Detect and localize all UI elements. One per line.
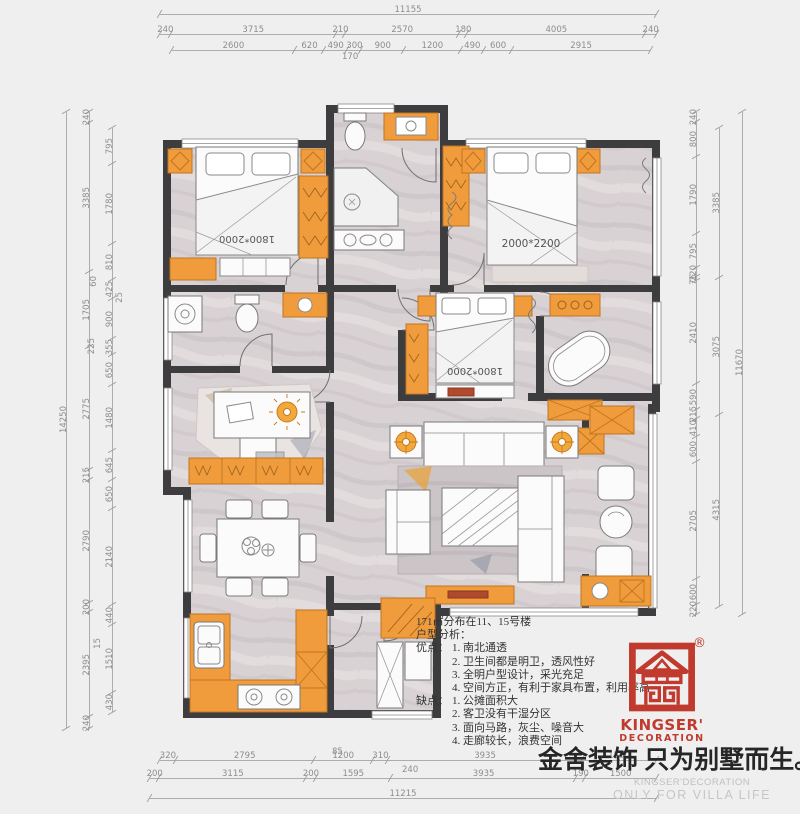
dining-chair [262, 500, 288, 518]
dim-segment: 2140 [102, 509, 116, 605]
dim-segment: 645 [102, 451, 116, 480]
dim-segment: 4005 [467, 24, 645, 38]
dim-segment: 620 [295, 40, 324, 54]
dim-segment: 2395 [79, 612, 93, 718]
bedroom-rug [492, 266, 588, 282]
armchair [386, 490, 430, 554]
dining-chair [300, 534, 316, 562]
dim-segment: 795 [102, 128, 116, 164]
dim-chain-right-mid: 338530754315 [709, 128, 723, 606]
dim-segment: 14250 [56, 112, 70, 728]
dim-segment: 2570 [345, 24, 459, 38]
dim-segment: 2795 [176, 750, 314, 764]
cabinet-x [590, 406, 634, 434]
dim-segment: 11215 [150, 788, 656, 802]
dim-segment: 430 [102, 693, 116, 712]
dim-segment: 3115 [159, 768, 306, 782]
watermark-line1: KINGSER'DECORATION [592, 777, 792, 788]
dim-segment: 2775 [79, 347, 93, 470]
analysis-heading: 户型分析： [416, 629, 641, 642]
dresser [170, 258, 216, 280]
dim-segment: 3385 [79, 123, 93, 273]
window [164, 388, 172, 470]
dim-segment: 11155 [160, 4, 656, 18]
dim-segment: 900 [361, 40, 404, 54]
brand-watermark: KINGSER'DECORATION ONLY FOR VILLA LIFE [592, 777, 792, 802]
dim-segment: 1790 [686, 157, 700, 234]
dim-chain-left-inner: 7951780810425900355650148064565021404401… [102, 128, 116, 712]
bookshelf [189, 458, 323, 484]
pros-label: 优点： [416, 642, 452, 695]
desk-paper [227, 402, 254, 423]
cons-label: 缺点： [416, 695, 452, 748]
dim-segment: 4315 [709, 415, 723, 606]
dim-chain-right-total: 11670 [732, 112, 746, 614]
dim-segment: 3385 [709, 128, 723, 278]
sofa-three-seat [424, 422, 544, 466]
shoe-cabinet [550, 294, 600, 316]
double-basin-counter [334, 230, 404, 250]
bed-size-label: 1800*2000 [447, 365, 503, 376]
dim-callout-170: 170 [342, 53, 358, 62]
washing-machine [168, 296, 202, 332]
dim-callout-15: 15 [94, 638, 103, 649]
dim-segment: 2410 [686, 281, 700, 385]
dim-segment: 795 [686, 234, 700, 268]
dining-chair [200, 534, 216, 562]
window [653, 158, 661, 276]
side-table-lamp [546, 426, 578, 458]
dim-chain-top-total: 11155 [160, 4, 656, 18]
dim-segment: 220 [686, 605, 700, 614]
nightstand [418, 296, 438, 316]
dim-segment: 800 [686, 122, 700, 156]
dim-callout-225: 225 [88, 338, 97, 354]
dining-chair [226, 500, 252, 518]
logo-name: KINGSER' [612, 718, 712, 733]
dim-segment: 1595 [316, 768, 391, 782]
dim-segment: 11670 [732, 112, 746, 614]
bed-size-label: 1800*2000 [219, 233, 275, 244]
dim-segment: 1780 [102, 164, 116, 244]
kingser-logo: ® KINGSER' DECORATION [612, 620, 712, 744]
area-line: 171㎡分布在11、15号楼 [416, 616, 641, 629]
dim-segment: 2705 [686, 462, 700, 578]
kitchen-sink [194, 622, 224, 668]
dim-chain-top-row2: 240371521025701804005240 [160, 24, 656, 38]
dim-segment: 1200 [314, 750, 373, 764]
sofa-two-seat [518, 476, 564, 582]
dim-chain-left-total: 14250 [56, 112, 70, 728]
kingser-logo-mark-icon [612, 642, 712, 716]
dim-segment: 180 [459, 24, 467, 38]
dim-segment: 1510 [102, 625, 116, 693]
study-room [189, 384, 323, 484]
floorplan-sheet: 11155 240371521025701804005240 260062049… [0, 0, 800, 814]
dim-segment: 2790 [79, 480, 93, 603]
dim-segment: 900 [102, 299, 116, 339]
side-table-lamp [390, 426, 422, 458]
balcony-table [600, 506, 632, 538]
dining-table [217, 519, 299, 577]
dim-chain-right-inner: 2408001790795220752410590215410600270560… [686, 112, 700, 614]
bathroom-vanity [384, 113, 438, 140]
dim-chain-bottom-total: 11215 [150, 788, 656, 802]
dim-callout-60: 60 [90, 276, 99, 287]
dim-segment: 3075 [709, 278, 723, 414]
pros-block: 优点： 1. 南北通透 2. 卫生间都是明卫，透风性好 3. 全明户型设计，采光… [416, 642, 641, 695]
dim-segment: 3715 [171, 24, 336, 38]
dim-segment: 2915 [512, 40, 650, 54]
dim-chain-left-mid: 24033851705277521527902002395240 [79, 112, 93, 728]
dim-segment: 1480 [102, 385, 116, 451]
bathroom-vanity [283, 293, 327, 317]
window [184, 500, 192, 592]
dim-segment: 2600 [172, 40, 295, 54]
dim-callout-85: 85 [332, 748, 343, 757]
dim-segment: 650 [102, 480, 116, 509]
dim-segment: 240 [645, 24, 656, 38]
watermark-line2: ONLY FOR VILLA LIFE [592, 788, 792, 802]
brand-slogan: 金舍装饰 只为别墅而生。 [538, 740, 800, 776]
toilet [235, 295, 259, 332]
dim-segment: 200 [150, 768, 159, 782]
fridge [296, 652, 327, 688]
window [450, 608, 638, 616]
bed-size-label: 2000*2200 [502, 238, 561, 250]
dining-chair [226, 578, 252, 596]
dim-callout-240: 240 [402, 766, 418, 775]
balcony-chair [598, 466, 634, 500]
toilet [344, 113, 366, 150]
dim-segment: 240 [79, 717, 93, 728]
dim-segment: 810 [102, 244, 116, 280]
dim-segment: 1200 [404, 40, 461, 54]
stove [238, 685, 300, 709]
dim-chain-top-row3: 260062049030090012004906002915 [172, 40, 650, 54]
window [653, 302, 661, 384]
bedroom-bench [220, 258, 290, 276]
kitchen-cabinet [296, 610, 327, 652]
window [338, 104, 394, 113]
shelf-x [377, 642, 403, 708]
registered-trademark-symbol: ® [693, 636, 706, 651]
dining-chair [262, 578, 288, 596]
apartment-analysis: 171㎡分布在11、15号楼 户型分析： 优点： 1. 南北通透 2. 卫生间都… [416, 616, 641, 748]
coffee-table [442, 488, 524, 546]
dim-segment: 650 [102, 355, 116, 384]
dim-callout-25: 25 [116, 292, 125, 303]
balcony-counter [581, 576, 651, 606]
dim-segment: 600 [484, 40, 512, 54]
